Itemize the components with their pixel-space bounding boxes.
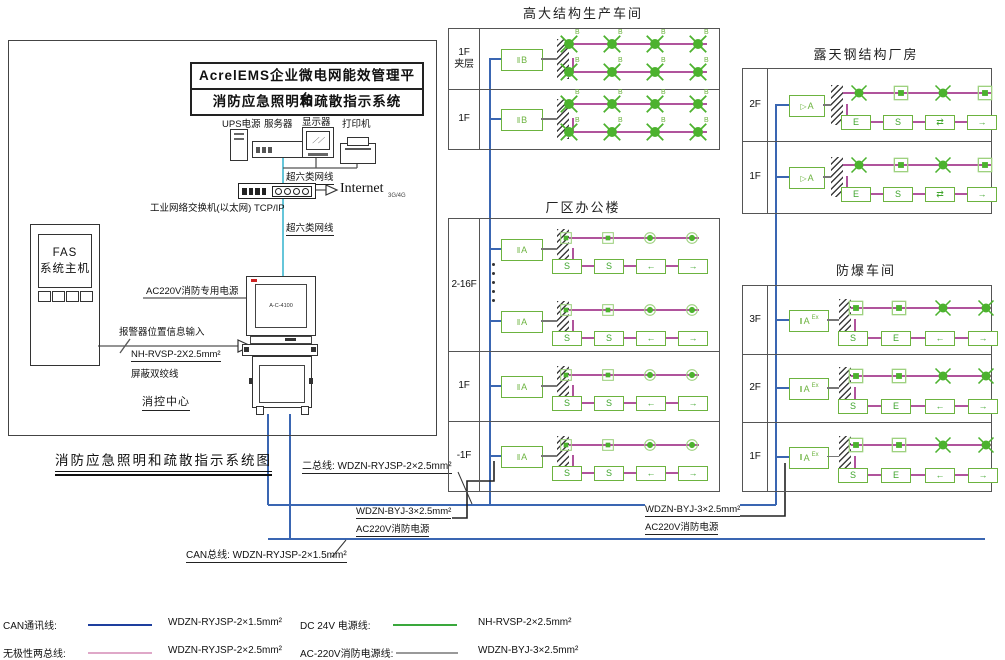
exit-sign: S xyxy=(552,331,582,346)
display-label: 显示器 xyxy=(302,114,331,128)
exit-sign: ← xyxy=(925,468,955,483)
emergency-lamp-cx xyxy=(601,61,623,83)
lamp-type-label: B xyxy=(575,117,580,124)
floor-label: 1F xyxy=(449,351,479,421)
ellipsis-dot xyxy=(492,281,495,284)
building-steel_plant: 2F▷AES⇄→1F▷AES⇄→ xyxy=(742,68,992,214)
printer-label: 打印机 xyxy=(342,116,371,130)
can-bus-label: CAN总线: WDZN-RYJSP-2×1.5mm² xyxy=(186,546,347,563)
lamp-type-label: B xyxy=(618,117,623,124)
cat6-cable-label-bottom: 超六类网线 xyxy=(286,220,334,236)
bus-stub xyxy=(491,118,501,120)
ups-icon xyxy=(230,129,248,161)
console-leg-right xyxy=(301,406,309,415)
device-wall-link xyxy=(541,58,557,60)
console-vent xyxy=(285,338,296,341)
distribution-device-box: ‖AEx xyxy=(789,310,829,332)
emergency-lamp-cx xyxy=(976,366,996,386)
exit-sign: S xyxy=(838,331,868,346)
console-door xyxy=(259,365,305,403)
building-office: 2-16F‖ASS←→‖ASS←→1F‖ASS←→-1F‖ASS←→ xyxy=(448,218,720,492)
distribution-device-box: ▷A xyxy=(789,167,825,189)
legend-cable-ac220: WDZN-BYJ-3×2.5mm² xyxy=(478,645,578,656)
run-line-top xyxy=(569,374,699,376)
ellipsis-dot xyxy=(492,272,495,275)
fas-host-box: FAS 系统主机 xyxy=(38,234,92,288)
exit-sign: ← xyxy=(636,259,666,274)
exit-sign: ← xyxy=(636,466,666,481)
device-wall-link xyxy=(823,104,831,106)
exit-sign: ← xyxy=(925,331,955,346)
fas-key-2 xyxy=(52,291,65,302)
switch-label: 工业网络交换机(以太网) TCP/IP xyxy=(150,200,285,214)
emergency-lamp-ci xyxy=(684,230,700,246)
bus-stub xyxy=(777,456,789,458)
fas-key-3 xyxy=(66,291,79,302)
emergency-lamp-cx xyxy=(687,61,709,83)
ellipsis-dot xyxy=(492,263,495,266)
distribution-device-box: ‖AEx xyxy=(789,447,829,469)
ac-name-right-label: AC220V消防电源 xyxy=(645,519,718,535)
printer-paper xyxy=(347,137,369,146)
shielded-pair-label: 屏蔽双绞线 xyxy=(131,366,179,380)
device-wall-link xyxy=(827,387,839,389)
floor-label: 2-16F xyxy=(449,219,479,351)
printer-icon xyxy=(340,143,376,164)
emergency-lamp-cx xyxy=(601,121,623,143)
exit-sign: → xyxy=(678,259,708,274)
building-explosion_proof: 3F‖AExSE←→2F‖AExSE←→1F‖AExSE←→ xyxy=(742,285,992,492)
emergency-lamp-sq xyxy=(891,83,911,103)
platform-title-block: AcrelEMS企业微电网能效管理平台 消防应急照明和疏散指示系统 xyxy=(190,62,424,116)
floor-row: ‖BBBBBBBBB xyxy=(479,89,719,149)
floor-label: 2F xyxy=(743,354,767,422)
legend-cable-can: WDZN-RYJSP-2×1.5mm² xyxy=(168,617,282,628)
console-screen: A-C-4100 xyxy=(255,284,307,328)
emergency-lamp-cx xyxy=(644,61,666,83)
lamp-type-label: B xyxy=(618,29,623,36)
emergency-lamp-sq xyxy=(889,298,909,318)
exit-sign: S xyxy=(594,331,624,346)
emergency-lamp-sq xyxy=(558,367,574,383)
platform-name: AcrelEMS企业微电网能效管理平台 xyxy=(192,64,422,90)
system-diagram-canvas: AcrelEMS企业微电网能效管理平台 消防应急照明和疏散指示系统 UPS电源 … xyxy=(0,0,1005,660)
exit-sign: S xyxy=(552,396,582,411)
control-room-label: 消控中心 xyxy=(142,393,190,411)
emergency-lamp-cx xyxy=(558,61,580,83)
device-wall-link xyxy=(541,320,557,322)
ellipsis-dot xyxy=(492,299,495,302)
device-wall-link xyxy=(541,248,557,250)
display-icon: ⟋⟋ xyxy=(302,127,334,158)
emergency-lamp-ci xyxy=(684,302,700,318)
lamp-type-label: B xyxy=(661,29,666,36)
server-icon xyxy=(252,141,305,158)
building-title-explosion_proof: 防爆车间 xyxy=(742,260,990,279)
two-bus-label: 二总线: WDZN-RYJSP-2×2.5mm² xyxy=(302,457,452,474)
floor-label: 1F xyxy=(449,89,479,149)
emergency-lamp-sq xyxy=(600,230,616,246)
console-panel-strip xyxy=(250,336,312,344)
exit-sign: → xyxy=(968,468,998,483)
internet-label: Internet xyxy=(340,181,384,197)
device-wall-link xyxy=(827,456,839,458)
server-label: 服务器 xyxy=(264,116,293,130)
emergency-lamp-sq xyxy=(558,302,574,318)
emergency-lamp-cx xyxy=(558,121,580,143)
exit-sign: E xyxy=(841,187,871,202)
floor-label: 1F xyxy=(743,422,767,491)
legend-name-can: CAN通讯线: xyxy=(3,617,57,632)
exit-sign: E xyxy=(881,468,911,483)
floor-row: ‖BBBBBBBBB xyxy=(479,29,719,89)
building-title-tall_workshop: 高大结构生产车间 xyxy=(448,3,718,22)
building-title-office: 厂区办公楼 xyxy=(448,197,718,216)
legend-line-twobus xyxy=(88,652,152,654)
run-line-top xyxy=(569,237,699,239)
lamp-type-label: B xyxy=(575,29,580,36)
legend-line-dc24 xyxy=(393,624,457,626)
bus-stub xyxy=(491,385,501,387)
lamp-type-label: B xyxy=(704,117,709,124)
emergency-lamp-sq xyxy=(558,230,574,246)
switch-ports xyxy=(272,186,312,197)
run-line-top xyxy=(851,444,991,446)
floor-row: ‖ASS←→‖ASS←→ xyxy=(479,219,719,351)
lamp-type-label: B xyxy=(618,57,623,64)
ac-cable-left-label: WDZN-BYJ-3×2.5mm² xyxy=(356,506,451,519)
floor-row: ‖AExSE←→ xyxy=(767,422,991,491)
emergency-lamp-cx xyxy=(849,155,869,175)
console-screen-text: A-C-4100 xyxy=(269,303,293,309)
floor-label: -1F xyxy=(449,421,479,491)
device-wall-link xyxy=(823,176,831,178)
emergency-lamp-cx xyxy=(644,93,666,115)
emergency-lamp-ci xyxy=(684,367,700,383)
legend-name-twobus: 无极性两总线: xyxy=(3,645,66,660)
legend-line-can xyxy=(88,624,152,626)
fas-key-1 xyxy=(38,291,51,302)
exit-sign: → xyxy=(967,115,997,130)
emergency-lamp-cx xyxy=(933,155,953,175)
fas-name-1: FAS xyxy=(53,245,78,261)
emergency-lamp-sq xyxy=(600,437,616,453)
emergency-lamp-ci xyxy=(642,230,658,246)
console-monitor: A-C-4100 xyxy=(246,276,316,336)
bus-stub xyxy=(491,58,501,60)
bus-stub xyxy=(777,387,789,389)
distribution-device-box: ‖A xyxy=(501,239,543,261)
distribution-device-box: ‖A xyxy=(501,311,543,333)
exit-sign: → xyxy=(678,396,708,411)
emergency-lamp-cx xyxy=(976,435,996,455)
distribution-device-box: ‖AEx xyxy=(789,378,829,400)
bus-stub xyxy=(491,320,501,322)
run-line-top xyxy=(569,309,699,311)
ac220v-dedicated-label: AC220V消防专用电源 xyxy=(146,283,238,297)
distribution-device-box: ‖A xyxy=(501,446,543,468)
lamp-type-label: B xyxy=(575,89,580,96)
lamp-type-label: B xyxy=(661,89,666,96)
internet-note: 3G/4G xyxy=(388,193,406,199)
exit-sign: → xyxy=(967,187,997,202)
ellipsis-dot xyxy=(492,290,495,293)
emergency-lamp-cx xyxy=(933,298,953,318)
floor-label: 2F xyxy=(743,69,767,141)
ups-label: UPS电源 xyxy=(222,116,261,130)
legend-cable-dc24: NH-RVSP-2×2.5mm² xyxy=(478,617,571,628)
exit-sign: ⇄ xyxy=(925,187,955,202)
floor-label: 1F xyxy=(743,141,767,213)
distribution-device-box: ‖B xyxy=(501,49,543,71)
building-tall_workshop: 1F 夹层‖BBBBBBBBB1F‖BBBBBBBBB xyxy=(448,28,720,150)
ac-cable-right-label: WDZN-BYJ-3×2.5mm² xyxy=(645,504,740,517)
floor-row: ‖ASS←→ xyxy=(479,421,719,491)
exit-sign: ← xyxy=(636,396,666,411)
lamp-type-label: B xyxy=(618,89,623,96)
ac-name-left-label: AC220V消防电源 xyxy=(356,521,429,537)
printer-slot xyxy=(345,148,371,150)
distribution-device-box: ‖B xyxy=(501,109,543,131)
exit-sign: ← xyxy=(636,331,666,346)
exit-sign: E xyxy=(881,399,911,414)
console-cabinet-body xyxy=(252,356,312,408)
alarm-cable-label: NH-RVSP-2X2.5mm² xyxy=(131,349,221,362)
emergency-lamp-cx xyxy=(933,366,953,386)
legend-line-ac220 xyxy=(396,652,458,654)
emergency-lamp-cx xyxy=(644,33,666,55)
display-screen-glyph: ⟋⟋ xyxy=(306,131,330,150)
console-leg-left xyxy=(256,406,264,415)
console-power-led xyxy=(251,279,257,282)
lamp-type-label: B xyxy=(575,57,580,64)
floor-label: 3F xyxy=(743,286,767,354)
emergency-lamp-sq xyxy=(975,155,995,175)
exit-sign: → xyxy=(968,331,998,346)
exit-sign: ⇄ xyxy=(925,115,955,130)
exit-sign: → xyxy=(678,466,708,481)
emergency-lamp-cx xyxy=(601,33,623,55)
emergency-lamp-cx xyxy=(558,33,580,55)
legend-name-dc24: DC 24V 电源线: xyxy=(300,617,371,632)
network-switch-icon xyxy=(238,183,316,199)
distribution-device-box: ▷A xyxy=(789,95,825,117)
floor-row: ‖AExSE←→ xyxy=(767,286,991,354)
lamp-type-label: B xyxy=(704,29,709,36)
emergency-lamp-sq xyxy=(558,437,574,453)
emergency-lamp-ci xyxy=(642,367,658,383)
emergency-lamp-sq xyxy=(889,435,909,455)
emergency-lamp-cx xyxy=(976,298,996,318)
lamp-type-label: B xyxy=(704,57,709,64)
device-wall-link xyxy=(541,118,557,120)
exit-sign: E xyxy=(881,331,911,346)
tray-end-left xyxy=(244,347,249,352)
run-line-top xyxy=(851,307,991,309)
emergency-lamp-sq xyxy=(889,366,909,386)
exit-sign: S xyxy=(838,468,868,483)
lamp-type-label: B xyxy=(704,89,709,96)
emergency-lamp-sq xyxy=(600,302,616,318)
exit-sign: E xyxy=(841,115,871,130)
emergency-lamp-ci xyxy=(684,437,700,453)
floor-row: ▷AES⇄→ xyxy=(767,69,991,141)
exit-sign: → xyxy=(968,399,998,414)
console-knob-left xyxy=(249,378,253,384)
exit-sign: S xyxy=(883,187,913,202)
emergency-lamp-cx xyxy=(601,93,623,115)
building-title-steel_plant: 露天钢结构厂房 xyxy=(742,44,990,63)
exit-sign: S xyxy=(552,466,582,481)
exit-sign: S xyxy=(594,466,624,481)
exit-sign: S xyxy=(838,399,868,414)
exit-sign: S xyxy=(883,115,913,130)
run-line-top xyxy=(851,375,991,377)
exit-sign: ← xyxy=(925,399,955,414)
exit-sign: S xyxy=(552,259,582,274)
exit-sign: → xyxy=(678,331,708,346)
exit-sign: S xyxy=(594,396,624,411)
emergency-lamp-ci xyxy=(642,302,658,318)
bus-stub xyxy=(777,104,789,106)
lamp-type-label: B xyxy=(661,57,666,64)
exit-sign: S xyxy=(594,259,624,274)
emergency-lamp-sq xyxy=(846,366,866,386)
legend-name-ac220: AC-220V消防电源线: xyxy=(300,645,393,660)
floor-row: ‖AExSE←→ xyxy=(767,354,991,422)
lamp-type-label: B xyxy=(661,117,666,124)
display-base xyxy=(308,153,328,156)
floor-label: 1F 夹层 xyxy=(449,29,479,89)
alarm-input-label: 报警器位置信息输入 xyxy=(119,324,205,338)
bus-stub xyxy=(777,319,789,321)
device-wall-link xyxy=(827,319,839,321)
device-wall-link xyxy=(541,385,557,387)
emergency-lamp-cx xyxy=(687,121,709,143)
emergency-lamp-cx xyxy=(933,435,953,455)
emergency-lamp-cx xyxy=(687,93,709,115)
emergency-lamp-sq xyxy=(891,155,911,175)
bus-stub xyxy=(777,176,789,178)
legend-cable-twobus: WDZN-RYJSP-2×2.5mm² xyxy=(168,645,282,656)
emergency-lamp-sq xyxy=(846,435,866,455)
bus-stub xyxy=(491,455,501,457)
bus-stub xyxy=(491,248,501,250)
emergency-lamp-sq xyxy=(975,83,995,103)
emergency-lamp-cx xyxy=(849,83,869,103)
emergency-lamp-ci xyxy=(642,437,658,453)
floor-row: ▷AES⇄→ xyxy=(767,141,991,213)
fas-name-2: 系统主机 xyxy=(40,261,90,277)
console-knob-right xyxy=(309,378,313,384)
emergency-lamp-cx xyxy=(933,83,953,103)
emergency-lamp-cx xyxy=(558,93,580,115)
diagram-title: 消防应急照明和疏散指示系统图 xyxy=(55,449,272,472)
emergency-lamp-cx xyxy=(644,121,666,143)
tray-end-right xyxy=(311,347,316,352)
console-keyboard-tray xyxy=(242,344,318,356)
floor-row: ‖ASS←→ xyxy=(479,351,719,421)
emergency-lamp-sq xyxy=(846,298,866,318)
emergency-lamp-sq xyxy=(600,367,616,383)
distribution-device-box: ‖A xyxy=(501,376,543,398)
run-line-top xyxy=(569,444,699,446)
emergency-lamp-cx xyxy=(687,33,709,55)
system-name: 消防应急照明和疏散指示系统 xyxy=(192,90,422,114)
device-wall-link xyxy=(541,455,557,457)
fas-key-4 xyxy=(80,291,93,302)
